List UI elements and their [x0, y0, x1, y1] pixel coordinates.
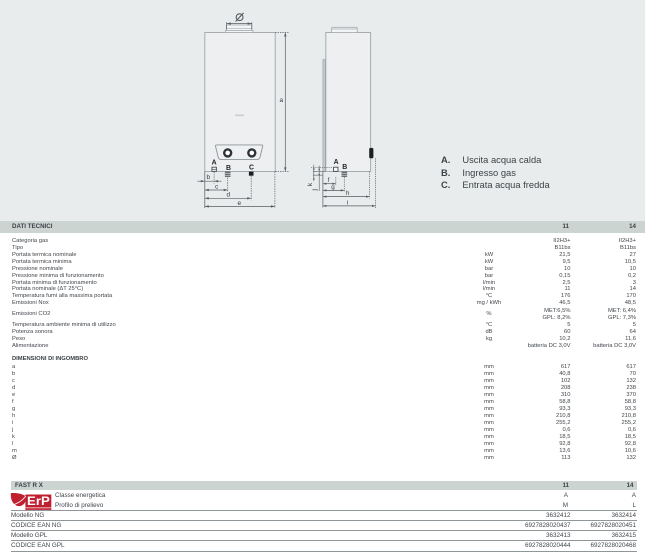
svg-text:e: e: [238, 200, 242, 207]
svg-text:h: h: [346, 190, 350, 197]
svg-text:i: i: [347, 199, 348, 206]
svg-text:B: B: [342, 164, 347, 171]
svg-text:C: C: [249, 165, 254, 172]
svg-text:A: A: [212, 159, 217, 166]
svg-text:f: f: [328, 177, 330, 184]
svg-text:c: c: [215, 183, 219, 190]
svg-text:d: d: [227, 192, 231, 199]
svg-text:B: B: [226, 165, 231, 172]
svg-text:k: k: [307, 182, 314, 186]
svg-text:g: g: [331, 184, 335, 191]
svg-text:b: b: [207, 174, 211, 181]
svg-text:a: a: [280, 97, 284, 104]
svg-text:A: A: [334, 159, 339, 166]
svg-text:j: j: [312, 189, 319, 191]
